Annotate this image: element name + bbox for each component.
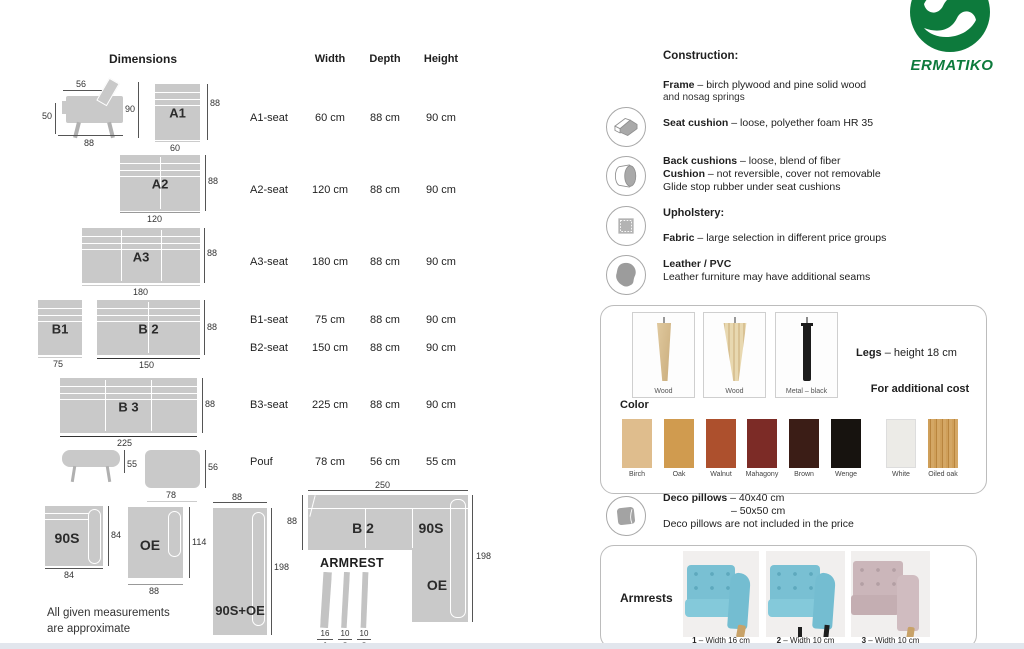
- dim-label: 180: [133, 287, 148, 297]
- swatch-label: Oiled oak: [921, 471, 965, 478]
- color-swatch-wenge: [831, 419, 861, 468]
- row-width: 120 cm: [302, 184, 358, 196]
- dim-label: 88: [149, 586, 159, 596]
- deco-pillows-note: Deco pillows are not included in the pri…: [663, 518, 854, 530]
- row-width: 75 cm: [302, 314, 358, 326]
- table-row: A1-seat 60 cm 88 cm 90 cm: [0, 112, 490, 126]
- row-width: 150 cm: [302, 342, 358, 354]
- row-depth: 56 cm: [357, 456, 413, 468]
- row-height: 90 cm: [412, 399, 470, 411]
- module-90s: 90S: [45, 506, 103, 566]
- module-oe: OE: [128, 507, 183, 578]
- dim-label: 225: [117, 438, 132, 448]
- back-cushions-line: Back cushions – loose, blend of fiber: [663, 155, 840, 167]
- row-depth: 88 cm: [357, 342, 413, 354]
- fabric-icon: [606, 206, 646, 246]
- dim-label: 88: [287, 516, 297, 526]
- row-height: 55 cm: [412, 456, 470, 468]
- dim-label: 88: [210, 98, 220, 108]
- leg-option-metal-black: Metal – black: [775, 312, 838, 398]
- table-row: A2-seat 120 cm 88 cm 90 cm: [0, 184, 490, 198]
- leather-icon: [606, 255, 646, 295]
- corner-label-90s: 90S: [408, 520, 454, 536]
- swatch-label: Mahagony: [740, 471, 784, 478]
- color-swatch-walnut: [706, 419, 736, 468]
- brand-logo: [908, 0, 992, 59]
- seat-cushion-line: Seat cushion – loose, polyether foam HR …: [663, 117, 873, 129]
- armrest-width-label: 10: [355, 629, 373, 638]
- brand-logo-icon: [908, 0, 992, 54]
- deco-pillows-line2: – 50x50 cm: [731, 505, 785, 517]
- row-height: 90 cm: [412, 314, 470, 326]
- dim-label: 198: [274, 562, 289, 572]
- corner-label-oe: OE: [414, 577, 460, 593]
- armrest-width-label: 10: [336, 629, 354, 638]
- color-swatch-white: [886, 419, 916, 468]
- table-row: B3-seat 225 cm 88 cm 90 cm: [0, 399, 490, 413]
- leg-option-wood-round: Wood: [632, 312, 695, 398]
- dim-label: 88: [84, 138, 94, 148]
- color-swatch-mahagony: [747, 419, 777, 468]
- row-depth: 88 cm: [357, 314, 413, 326]
- row-height: 90 cm: [412, 342, 470, 354]
- dim-label: 120: [147, 214, 162, 224]
- armrest-photo-2: [766, 551, 845, 637]
- page-bottom-edge: [0, 643, 1024, 649]
- dim-label: 114: [192, 537, 206, 547]
- row-depth: 88 cm: [357, 256, 413, 268]
- spec-sheet-page: Dimensions 56 50 90 88 A1 88 60 A2 88 12…: [0, 0, 1024, 649]
- swatch-label: Walnut: [699, 471, 743, 478]
- col-header-depth: Depth: [357, 53, 413, 65]
- color-title: Color: [620, 399, 649, 411]
- dim-label: 78: [166, 490, 176, 500]
- module-90s-oe: 90S+OE: [213, 508, 267, 635]
- leg-option-label: Wood: [633, 388, 694, 395]
- frame-line: Frame – birch plywood and pine solid woo…: [663, 79, 866, 91]
- cushion-line: Cushion – not reversible, cover not remo…: [663, 168, 881, 180]
- row-width: 78 cm: [302, 456, 358, 468]
- dim-label: 60: [170, 143, 180, 153]
- dim-label: 250: [375, 480, 390, 490]
- module-a2: A2: [120, 155, 200, 211]
- table-header-row: Width Depth Height: [0, 53, 490, 67]
- back-cushion-icon: [606, 156, 646, 196]
- approx-note-line2: are approximate: [47, 623, 130, 635]
- row-height: 90 cm: [412, 184, 470, 196]
- swatch-label: Wenge: [824, 471, 868, 478]
- dim-label: 84: [111, 530, 121, 540]
- fabric-line: Fabric – large selection in different pr…: [663, 232, 886, 244]
- leg-option-label: Wood: [704, 388, 765, 395]
- armrest-diagram-title: ARMREST: [320, 556, 384, 570]
- dim-label: 88: [232, 492, 242, 502]
- armrests-title: Armrests: [620, 591, 673, 605]
- dim-label: 198: [476, 551, 491, 561]
- frame-line2: and nosag springs: [663, 92, 745, 103]
- leg-option-wood-square: Wood: [703, 312, 766, 398]
- table-row: B1-seat 75 cm 88 cm 90 cm: [0, 314, 490, 328]
- glide-line: Glide stop rubber under seat cushions: [663, 181, 840, 193]
- dim-label: 56: [76, 79, 86, 89]
- leather-line: Leather furniture may have additional se…: [663, 271, 870, 283]
- color-swatch-oak: [664, 419, 694, 468]
- armrest-photo-3: [851, 551, 930, 637]
- legs-heading: Legs – height 18 cm: [856, 347, 957, 359]
- leg-option-label: Metal – black: [776, 388, 837, 395]
- corner-label-b2: B 2: [340, 520, 386, 536]
- swatch-label: Brown: [782, 471, 826, 478]
- leather-title: Leather / PVC: [663, 258, 731, 270]
- row-depth: 88 cm: [357, 399, 413, 411]
- row-width: 180 cm: [302, 256, 358, 268]
- table-row: Pouf 78 cm 56 cm 55 cm: [0, 456, 490, 470]
- row-height: 90 cm: [412, 256, 470, 268]
- col-header-height: Height: [412, 53, 470, 65]
- module-label: 90S+OE: [211, 603, 269, 618]
- col-header-width: Width: [302, 53, 358, 65]
- dim-label: 84: [64, 570, 74, 580]
- module-label: 90S: [45, 530, 89, 546]
- row-width: 60 cm: [302, 112, 358, 124]
- row-depth: 88 cm: [357, 184, 413, 196]
- row-depth: 88 cm: [357, 112, 413, 124]
- swatch-label: White: [879, 471, 923, 478]
- row-width: 225 cm: [302, 399, 358, 411]
- swatch-label: Oak: [657, 471, 701, 478]
- upholstery-title: Upholstery:: [663, 207, 724, 219]
- table-row: A3-seat 180 cm 88 cm 90 cm: [0, 256, 490, 270]
- deco-pillows-line1: Deco pillows – 40x40 cm: [663, 492, 784, 504]
- seat-cushion-icon: [606, 107, 646, 147]
- approx-note-line1: All given measurements: [47, 607, 170, 619]
- dim-label: 150: [139, 360, 154, 370]
- swatch-label: Birch: [615, 471, 659, 478]
- armrest-photo-1: [683, 551, 759, 637]
- brand-name: ERMATIKO: [906, 57, 998, 74]
- deco-pillow-icon: [606, 496, 646, 536]
- table-row: B2-seat 150 cm 88 cm 90 cm: [0, 342, 490, 356]
- color-swatch-brown: [789, 419, 819, 468]
- dim-label: 75: [53, 359, 63, 369]
- additional-cost-label: For additional cost: [870, 383, 970, 397]
- armrest-width-label: 16: [315, 629, 335, 638]
- construction-title: Construction:: [663, 50, 738, 62]
- color-swatch-oiled-oak: [928, 419, 958, 468]
- color-swatch-birch: [622, 419, 652, 468]
- row-height: 90 cm: [412, 112, 470, 124]
- module-label: OE: [128, 537, 172, 553]
